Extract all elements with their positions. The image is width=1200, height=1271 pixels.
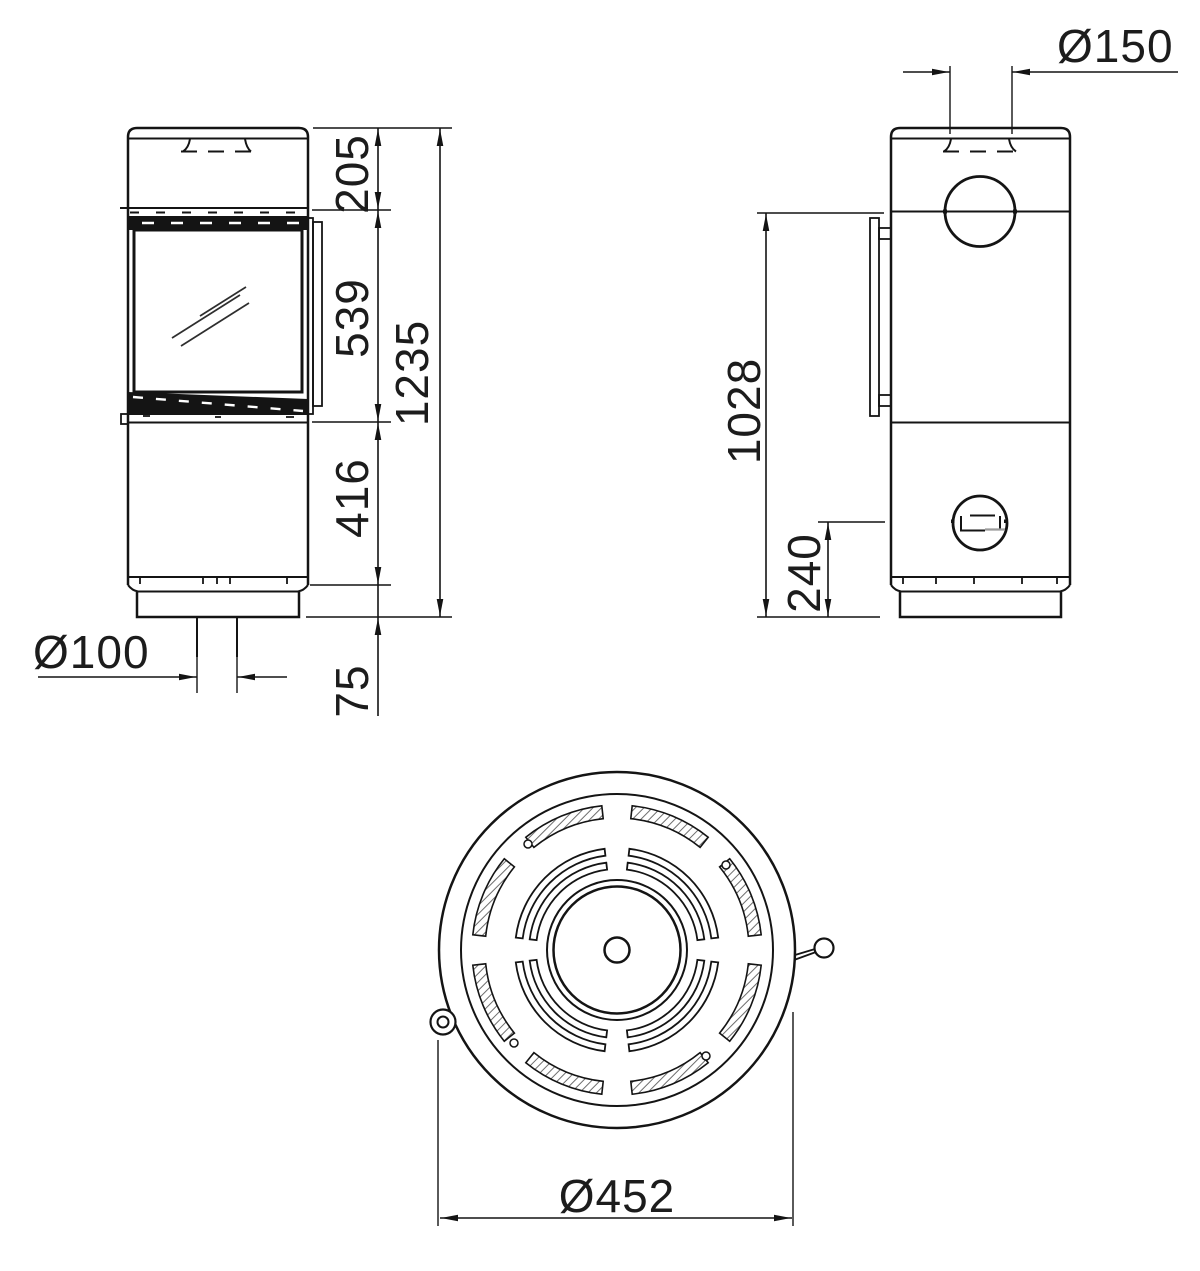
dim-front-lower-section: 416 [326,458,378,538]
side-hinge-bottom-icon [879,395,891,406]
side-view [870,128,1070,617]
dim-side-door-top-height: 1028 [718,358,770,464]
top-view [431,772,834,1128]
side-plinth [891,585,1070,617]
dim-floor-air-inlet-diameter: Ø100 [33,626,150,678]
side-base-band-ticks [903,578,1057,584]
dim-front-window-section: 539 [326,278,378,358]
front-door-top-band [128,216,308,230]
drawing-canvas: 205 539 1235 416 75 Ø100 Ø150 1028 240 Ø… [0,0,1200,1271]
front-view [120,128,322,693]
flue-circle-tick-left [943,210,947,214]
front-glass-window [134,230,302,392]
dim-front-top-section: 205 [326,134,378,214]
front-door-bottom-band [128,392,308,415]
top-center-hole [605,938,630,963]
front-door-edge-inner [313,222,322,406]
side-hinge-top-icon [879,228,891,239]
door-hinge-icon [431,1010,456,1035]
side-flue-collar-icon [943,139,1017,152]
stove-dimension-drawing: 205 539 1235 416 75 Ø100 Ø150 1028 240 Ø… [0,0,1200,1271]
dim-front-plinth: 75 [326,664,378,717]
side-door-edge [870,218,879,416]
front-door-strip-ticks [143,416,294,417]
front-plinth [128,585,308,617]
dim-top-body-diameter: Ø452 [559,1170,676,1222]
front-base-band-ticks [140,578,287,584]
floor-air-inlet-stub [197,617,237,693]
dim-flue-pipe-diameter: Ø150 [1057,20,1174,72]
dim-side-rear-air-inlet-height: 240 [778,533,830,613]
flue-circle-tick-right [1013,210,1017,214]
dim-front-total-height: 1235 [386,320,438,426]
rear-air-inlet [951,496,1008,550]
door-handle-icon [794,939,834,961]
front-flue-collar-icon [181,139,254,152]
